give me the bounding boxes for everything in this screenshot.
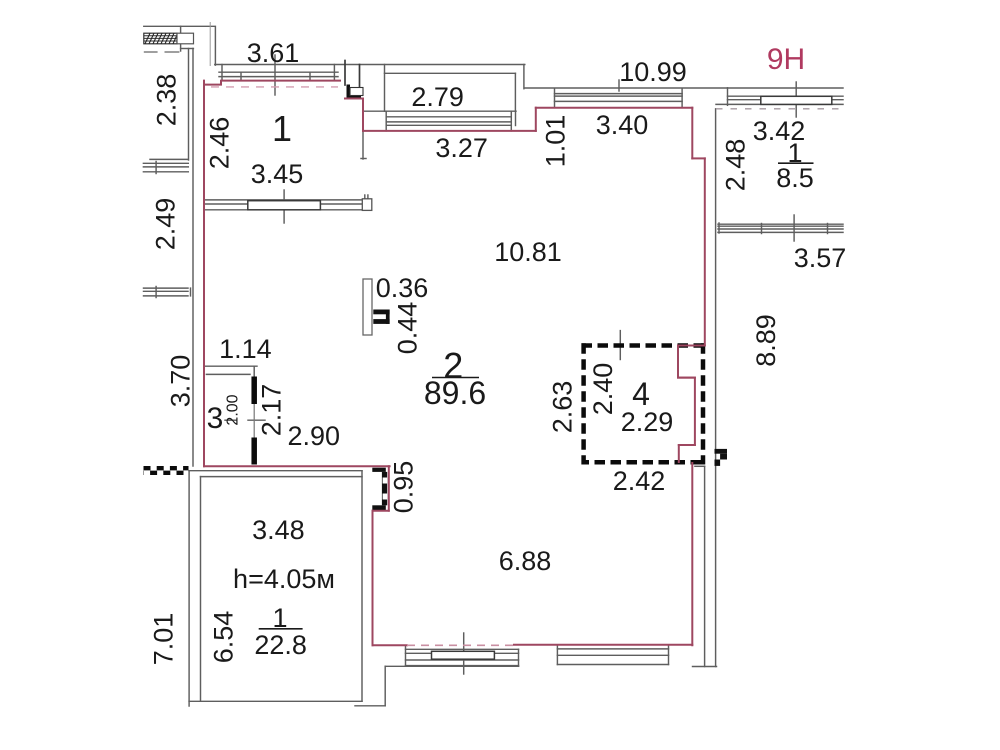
svg-text:8.5: 8.5 — [776, 163, 814, 193]
svg-text:h=4.05м: h=4.05м — [233, 564, 335, 594]
svg-text:6.88: 6.88 — [499, 546, 552, 576]
svg-text:2.40: 2.40 — [588, 363, 618, 416]
svg-text:3.48: 3.48 — [252, 515, 305, 545]
svg-text:22.8: 22.8 — [254, 630, 307, 660]
svg-text:2: 2 — [443, 345, 463, 386]
svg-text:6.54: 6.54 — [209, 611, 239, 664]
svg-text:2.48: 2.48 — [721, 139, 751, 192]
svg-text:4: 4 — [632, 376, 650, 412]
svg-text:2.42: 2.42 — [613, 466, 666, 496]
svg-text:2.46: 2.46 — [205, 117, 235, 170]
svg-text:2.38: 2.38 — [152, 74, 182, 127]
svg-text:1.01: 1.01 — [541, 115, 571, 168]
svg-text:0.44: 0.44 — [393, 302, 423, 355]
svg-text:3: 3 — [207, 402, 224, 435]
svg-text:10.99: 10.99 — [619, 57, 687, 87]
svg-text:2.00: 2.00 — [225, 394, 242, 425]
svg-text:1: 1 — [272, 108, 292, 149]
svg-text:3.70: 3.70 — [166, 355, 196, 408]
svg-text:8.89: 8.89 — [751, 314, 781, 367]
svg-text:2.79: 2.79 — [411, 82, 464, 112]
svg-text:7.01: 7.01 — [149, 613, 179, 666]
svg-text:0.36: 0.36 — [376, 273, 429, 303]
svg-text:0.95: 0.95 — [389, 461, 419, 514]
svg-text:3.45: 3.45 — [251, 159, 304, 189]
svg-text:1.14: 1.14 — [219, 334, 272, 364]
svg-text:3.57: 3.57 — [794, 243, 847, 273]
svg-text:2.49: 2.49 — [151, 198, 181, 251]
svg-text:3.61: 3.61 — [247, 38, 300, 68]
svg-text:9Н: 9Н — [767, 43, 805, 76]
svg-text:10.81: 10.81 — [494, 237, 562, 267]
svg-text:2.90: 2.90 — [288, 421, 341, 451]
svg-text:3.27: 3.27 — [435, 133, 488, 163]
svg-text:3.40: 3.40 — [596, 110, 649, 140]
svg-text:2.63: 2.63 — [548, 381, 578, 434]
svg-text:2.17: 2.17 — [257, 384, 287, 437]
